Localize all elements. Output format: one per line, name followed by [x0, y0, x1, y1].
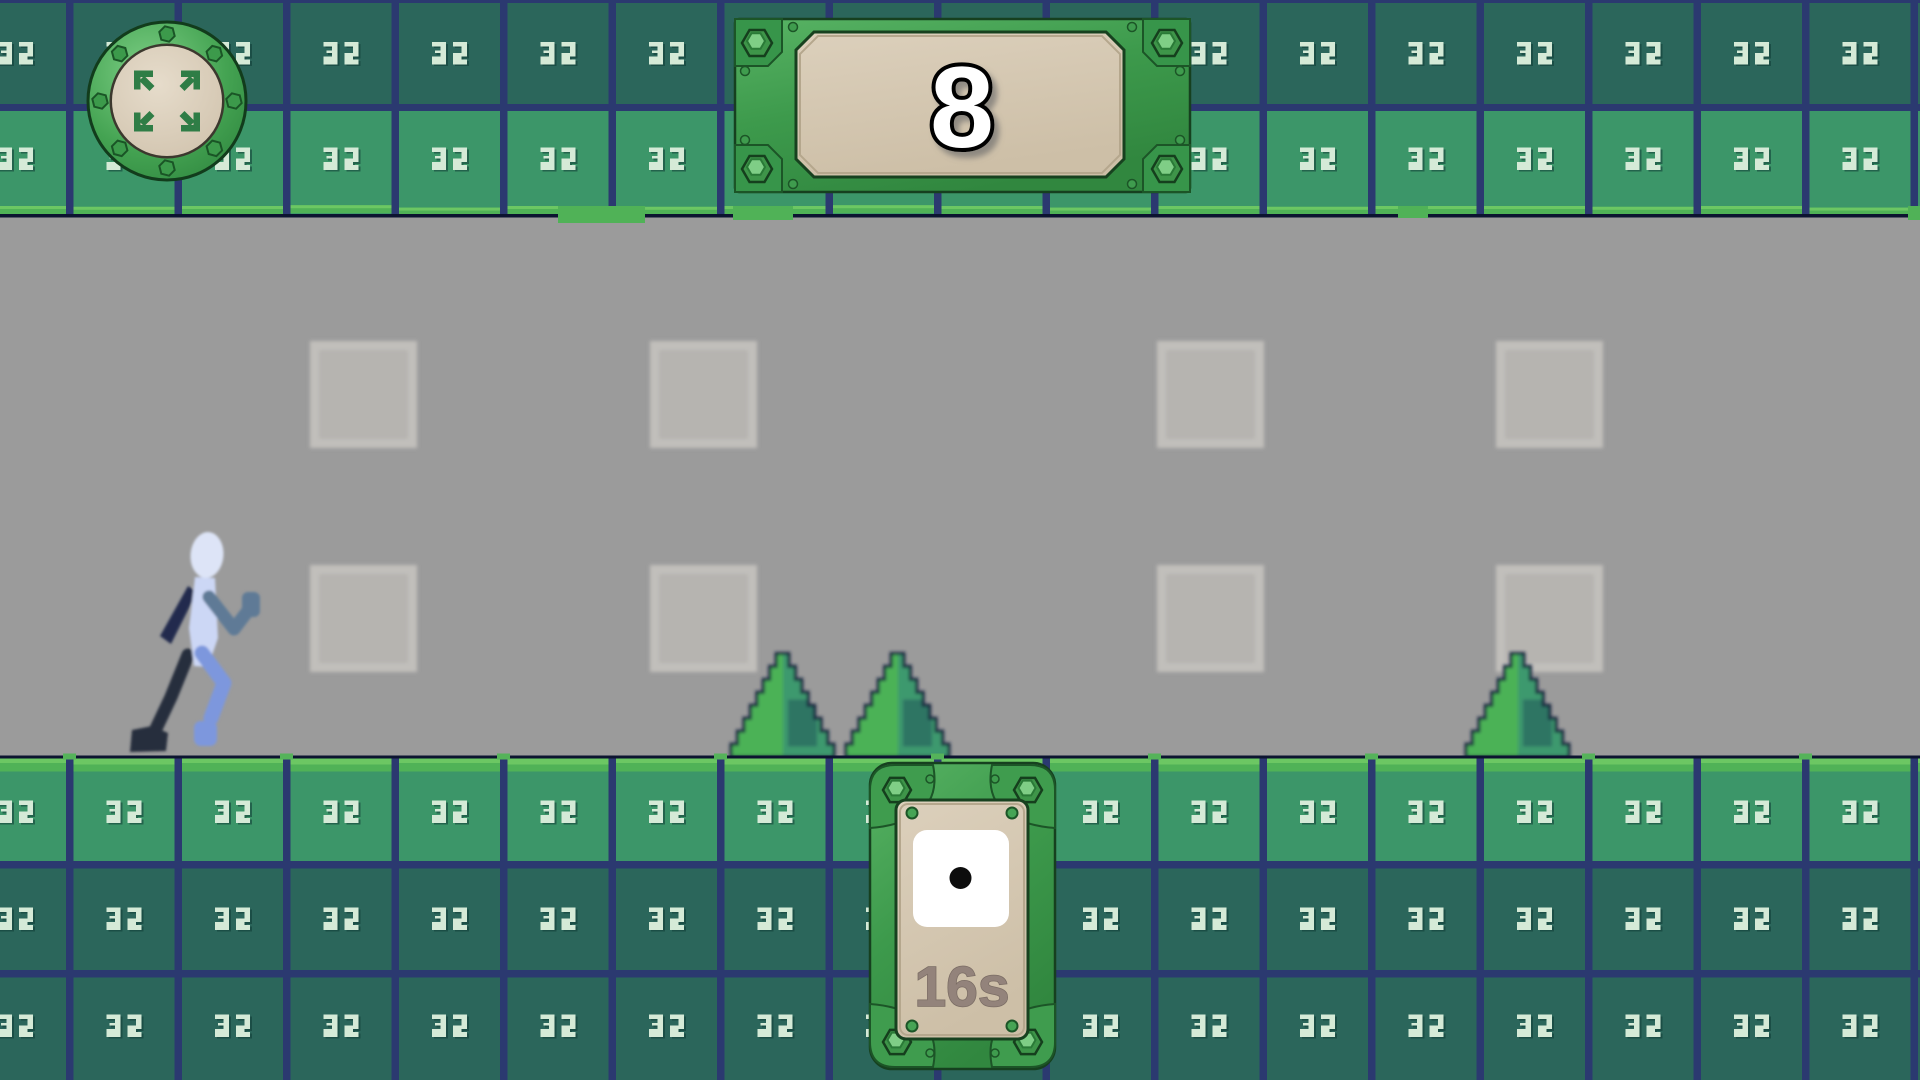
- svg-text:16s: 16s: [914, 955, 1009, 1019]
- svg-text:8: 8: [930, 44, 994, 172]
